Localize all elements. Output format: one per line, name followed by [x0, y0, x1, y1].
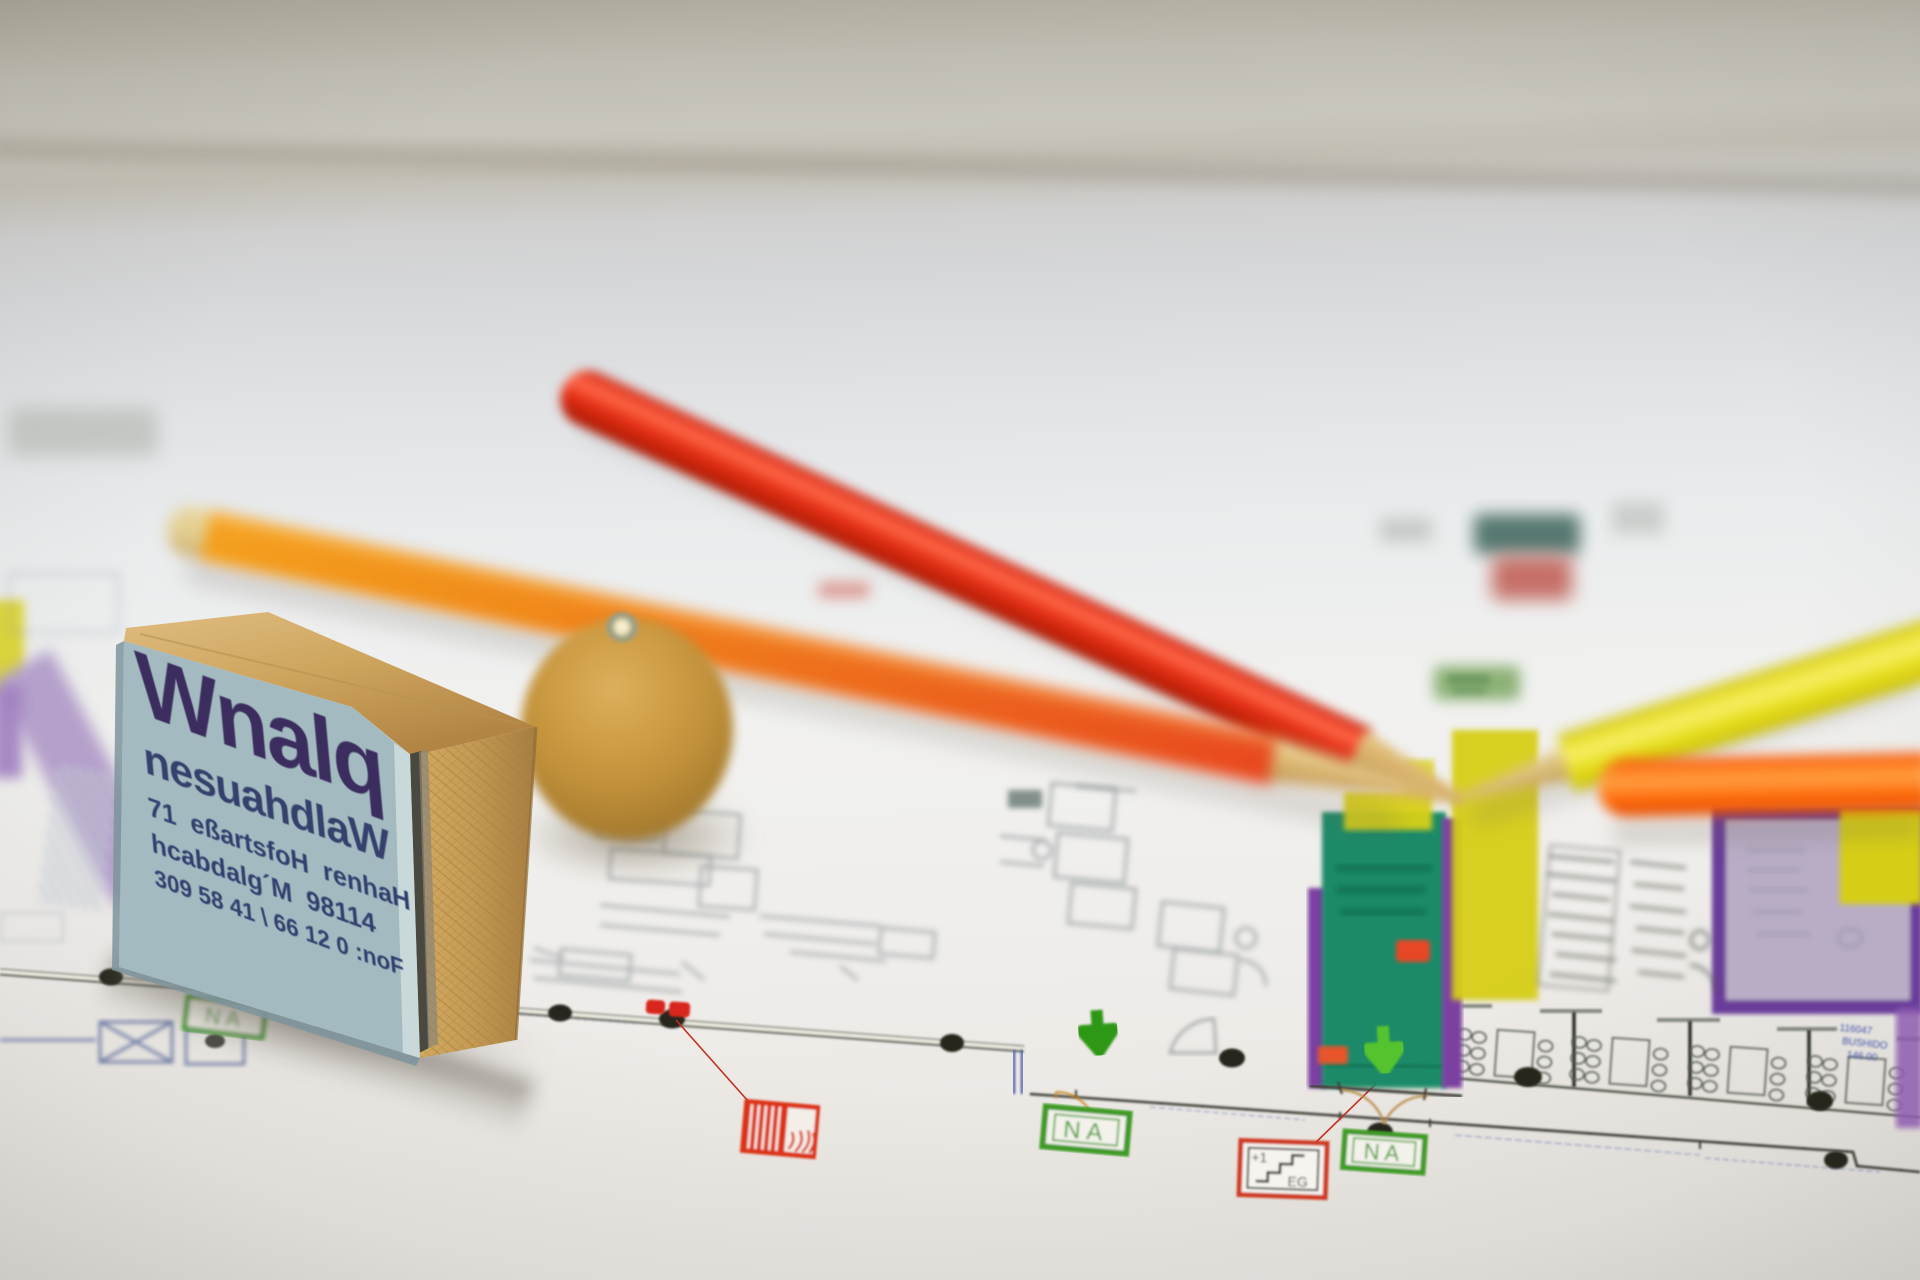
- svg-text:NA: NA: [1363, 1139, 1405, 1167]
- svg-text:116047: 116047: [1839, 1023, 1873, 1037]
- svg-text:EG: EG: [1287, 1173, 1308, 1190]
- svg-text:NA: NA: [1062, 1116, 1110, 1147]
- svg-text:+1: +1: [1251, 1149, 1268, 1166]
- svg-text:146.00: 146.00: [1846, 1050, 1878, 1064]
